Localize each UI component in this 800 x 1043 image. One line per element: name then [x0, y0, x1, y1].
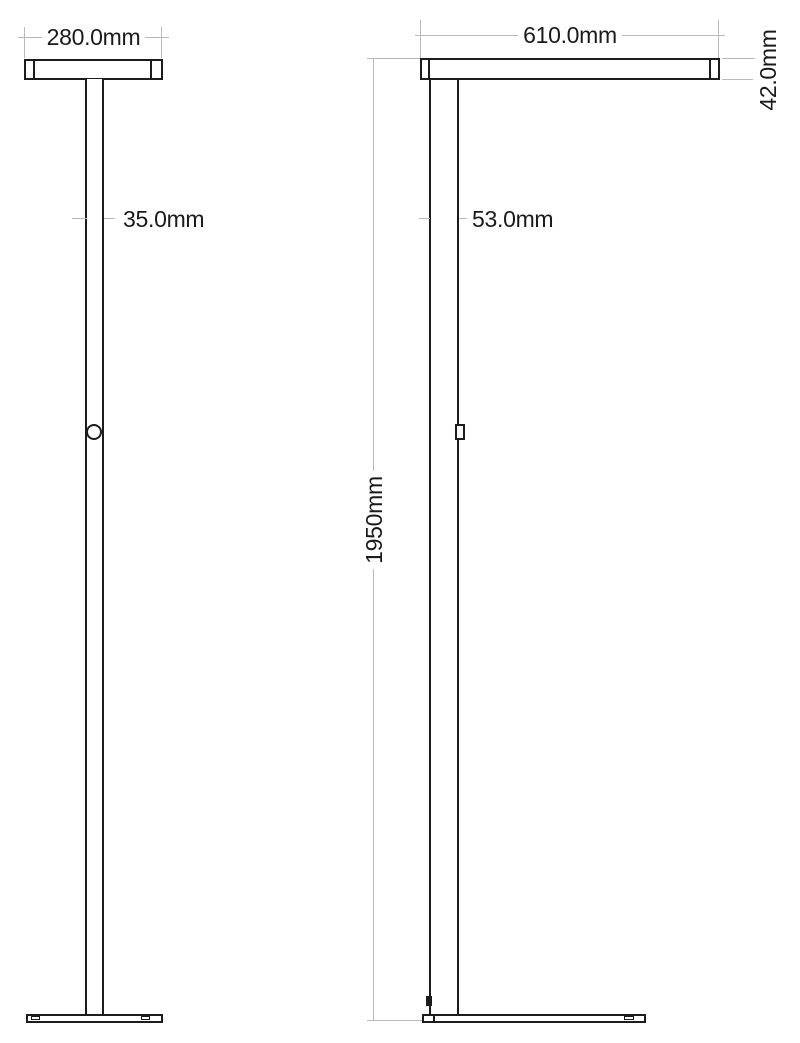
power-switch [455, 424, 465, 440]
head-end-cap [150, 61, 152, 78]
dim-label-side-pole-depth: 53.0mm [467, 206, 558, 232]
base-foot [31, 1016, 40, 1020]
lamp-pole-front [85, 79, 104, 1016]
cable-nub [426, 996, 432, 1006]
extension-line [367, 58, 420, 59]
head-end-cap [709, 60, 711, 78]
lamp-head-front [24, 59, 163, 80]
leader-line [419, 218, 430, 219]
lamp-head-side [420, 58, 720, 80]
leader-line [104, 218, 115, 219]
lamp-base-front [26, 1014, 163, 1023]
leader-line [72, 218, 87, 219]
base-end-cap [433, 1016, 435, 1021]
dimmer-knob-circle [86, 424, 102, 440]
lamp-pole-side [429, 80, 459, 1016]
extension-line [722, 58, 756, 59]
extension-line [367, 1020, 422, 1021]
dimensional-drawing: 280.0mm 35.0mm 610.0mm [0, 0, 800, 1043]
dim-label-overall-height: 1950mm [361, 471, 387, 569]
dim-label-front-pole-width: 35.0mm [118, 206, 209, 232]
dim-label-side-head-height: 42.0mm [755, 24, 781, 115]
head-end-cap [428, 60, 430, 78]
extension-line [722, 79, 753, 80]
head-end-cap [33, 61, 35, 78]
base-foot [141, 1016, 150, 1020]
lamp-base-side [422, 1014, 646, 1023]
dim-label-side-head-width: 610.0mm [420, 22, 720, 48]
dim-label-front-head-width: 280.0mm [19, 24, 168, 50]
base-foot [624, 1016, 634, 1020]
